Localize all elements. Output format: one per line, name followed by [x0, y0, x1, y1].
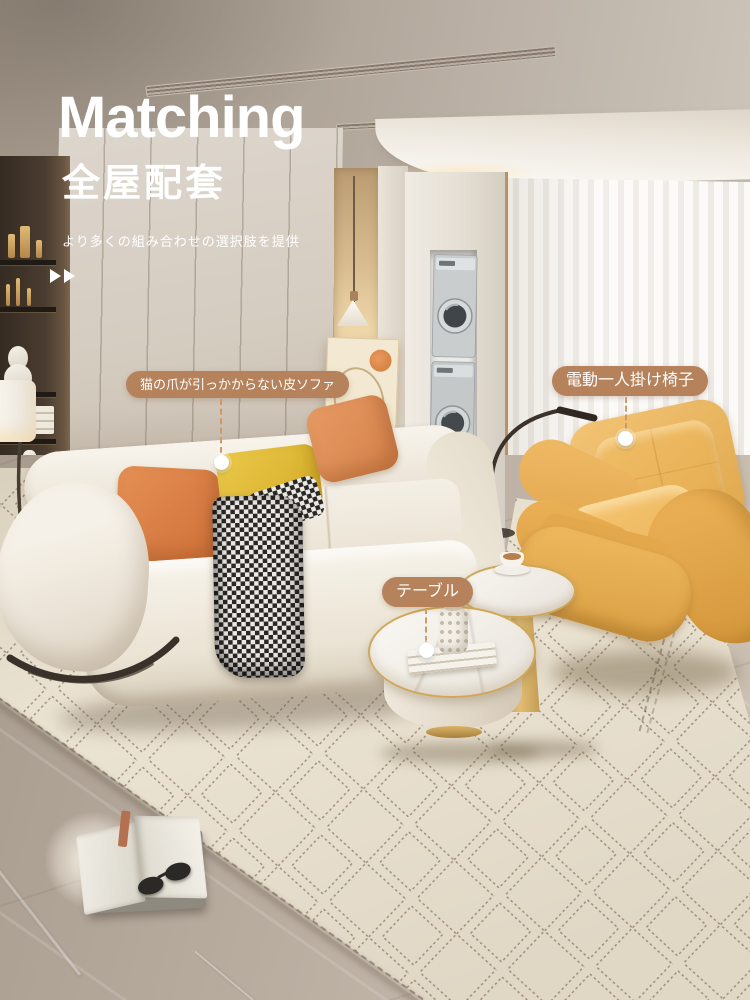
gold-decor: [36, 240, 42, 258]
callout-sofa-line: [220, 399, 222, 453]
pendant-lamp-cap: [350, 291, 358, 301]
gold-decor: [20, 226, 30, 258]
page-title: Matching: [58, 84, 305, 151]
callout-chair: 電動一人掛け椅子: [552, 366, 708, 396]
coffee-cup: [494, 550, 530, 574]
arrow-right-icon: [50, 269, 61, 283]
gold-candlestick: [27, 288, 31, 306]
coffee-table-foot: [426, 726, 482, 738]
callout-table-dot: [419, 643, 434, 658]
gold-decor: [8, 234, 15, 258]
callout-sofa-dot: [214, 455, 229, 470]
callout-table-line: [425, 608, 427, 642]
coffee-table-large: [366, 606, 542, 752]
pendant-lamp-cord: [353, 176, 355, 302]
coffee-surface: [503, 553, 521, 560]
product-showcase-image: 猫の爪が引っかからない皮ソファ 電動一人掛け椅子 テーブル Matching 全…: [0, 0, 750, 1000]
callout-chair-dot: [618, 431, 633, 446]
washing-machine-top: [432, 255, 477, 358]
callout-sofa: 猫の爪が引っかからない皮ソファ: [126, 371, 349, 398]
callout-table: テーブル: [382, 577, 473, 607]
open-book: [72, 799, 234, 939]
gold-candlestick: [16, 278, 20, 306]
play-arrows: [50, 269, 90, 285]
page-tagline: より多くの組み合わせの選択肢を提供: [62, 231, 300, 250]
arrow-right-icon: [64, 269, 75, 283]
callout-chair-line: [625, 397, 627, 429]
table-vase: [438, 608, 468, 654]
gold-candlestick: [6, 284, 10, 306]
page-subtitle: 全屋配套: [62, 152, 226, 207]
throw-blanket: [212, 495, 305, 679]
